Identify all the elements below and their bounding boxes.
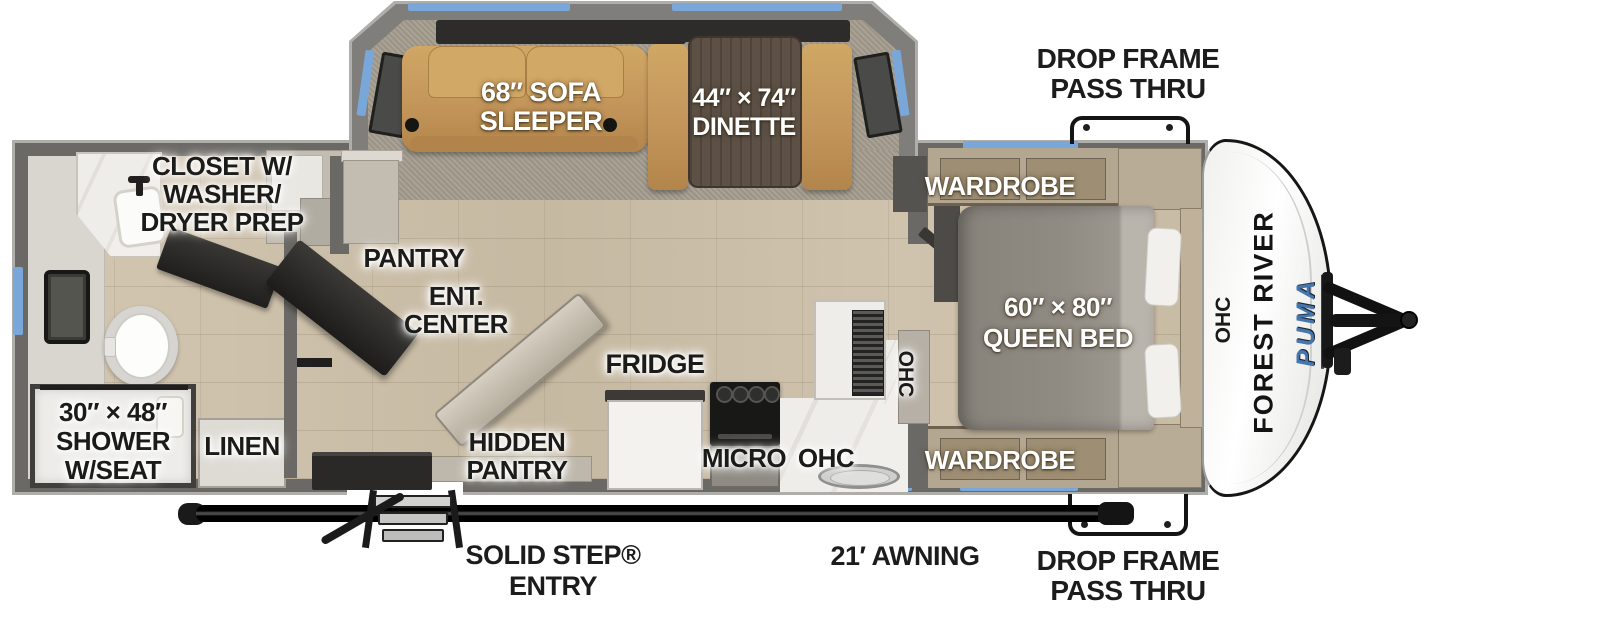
drop-frame-bottom-label: DROP FRAMEPASS THRU — [1037, 546, 1220, 606]
step-tread-3 — [382, 529, 444, 542]
hitch-tongue — [1330, 314, 1410, 327]
pass-thru-screw-top-right — [1166, 124, 1173, 131]
hitch-coupler — [1400, 311, 1418, 329]
forest-river-logo: FOREST RIVER — [1249, 210, 1280, 434]
pass-thru-screw-top-left — [1083, 124, 1090, 131]
sofa-label: 68″ SOFASLEEPER — [480, 78, 603, 136]
sofa-seat-edge — [410, 136, 638, 152]
slideout-window-top-right — [672, 3, 842, 11]
fridge — [607, 400, 703, 490]
dinette-bench-right — [802, 44, 852, 190]
sofa-cupholder-right — [603, 118, 617, 132]
bedroom-corner-block — [893, 156, 927, 212]
ent-center-label: ENT.CENTER — [404, 282, 508, 338]
closet-label: CLOSET W/WASHER/DRYER PREP — [140, 152, 303, 236]
pantry-cabinet — [343, 160, 399, 244]
bed-pillow-bottom — [1144, 343, 1182, 419]
queen-bed-label: 60″ × 80″QUEEN BED — [983, 292, 1133, 354]
bathroom-window — [44, 270, 90, 344]
louvered-vent-icon — [852, 310, 884, 396]
burner-3-icon — [748, 386, 765, 403]
solid-step-entry-label: SOLID STEP®ENTRY — [466, 540, 641, 602]
burner-4-icon — [764, 386, 780, 403]
toilet-seat — [113, 313, 170, 379]
sofa-overhead-cabinet — [436, 20, 686, 44]
toilet-hinge — [104, 337, 116, 357]
puma-logo-text: PUMA — [1292, 275, 1324, 369]
shower-glass-door — [40, 385, 188, 390]
burner-2-icon — [732, 386, 749, 403]
sofa-cupholder-left — [405, 118, 419, 132]
oven-handle — [718, 434, 772, 439]
awning-label: 21′ AWNING — [831, 542, 980, 571]
bed-pillow-top — [1144, 227, 1182, 307]
dinette-bench-left — [648, 44, 688, 190]
pass-thru-screw-bottom-right — [1164, 521, 1171, 528]
bedroom-tall-cabinet — [934, 204, 960, 302]
micro-label: MICRO — [702, 444, 786, 473]
drop-frame-top-label: DROP FRAMEPASS THRU — [1037, 44, 1220, 104]
pantry-label: PANTRY — [364, 244, 465, 273]
front-corner-cabinet-bottom — [1118, 424, 1202, 488]
awning-right-collar — [1098, 502, 1134, 525]
wardrobe-bottom-label: WARDROBE — [925, 446, 1076, 475]
ohc-front-label: OHC — [1212, 297, 1236, 344]
dinette-label: 44″ × 74″DINETTE — [692, 84, 796, 142]
awning-roller-bar — [196, 505, 1132, 522]
pass-thru-screw-bottom-left — [1081, 521, 1088, 528]
wardrobe-top-label: WARDROBE — [925, 172, 1076, 201]
slideout-window-top-left — [408, 3, 570, 11]
hidden-pantry-label: HIDDENPANTRY — [467, 428, 568, 484]
fridge-label: FRIDGE — [605, 350, 704, 379]
rear-wall-window — [13, 267, 23, 335]
linen-label: LINEN — [204, 432, 280, 461]
floorplan-canvas: 68″ SOFASLEEPER 44″ × 74″DINETTE CLOSET … — [0, 0, 1600, 620]
entry-landing-platform — [312, 452, 432, 490]
step-tread-2 — [378, 512, 448, 525]
ohc-label: OHC — [798, 444, 854, 473]
shower-label: 30″ × 48″SHOWERW/SEAT — [56, 398, 170, 485]
hitch-jack-foot — [1334, 348, 1351, 375]
front-corner-cabinet-top — [1118, 148, 1202, 210]
burner-1-icon — [716, 386, 733, 403]
ohc-side-label: OHC — [893, 351, 917, 398]
